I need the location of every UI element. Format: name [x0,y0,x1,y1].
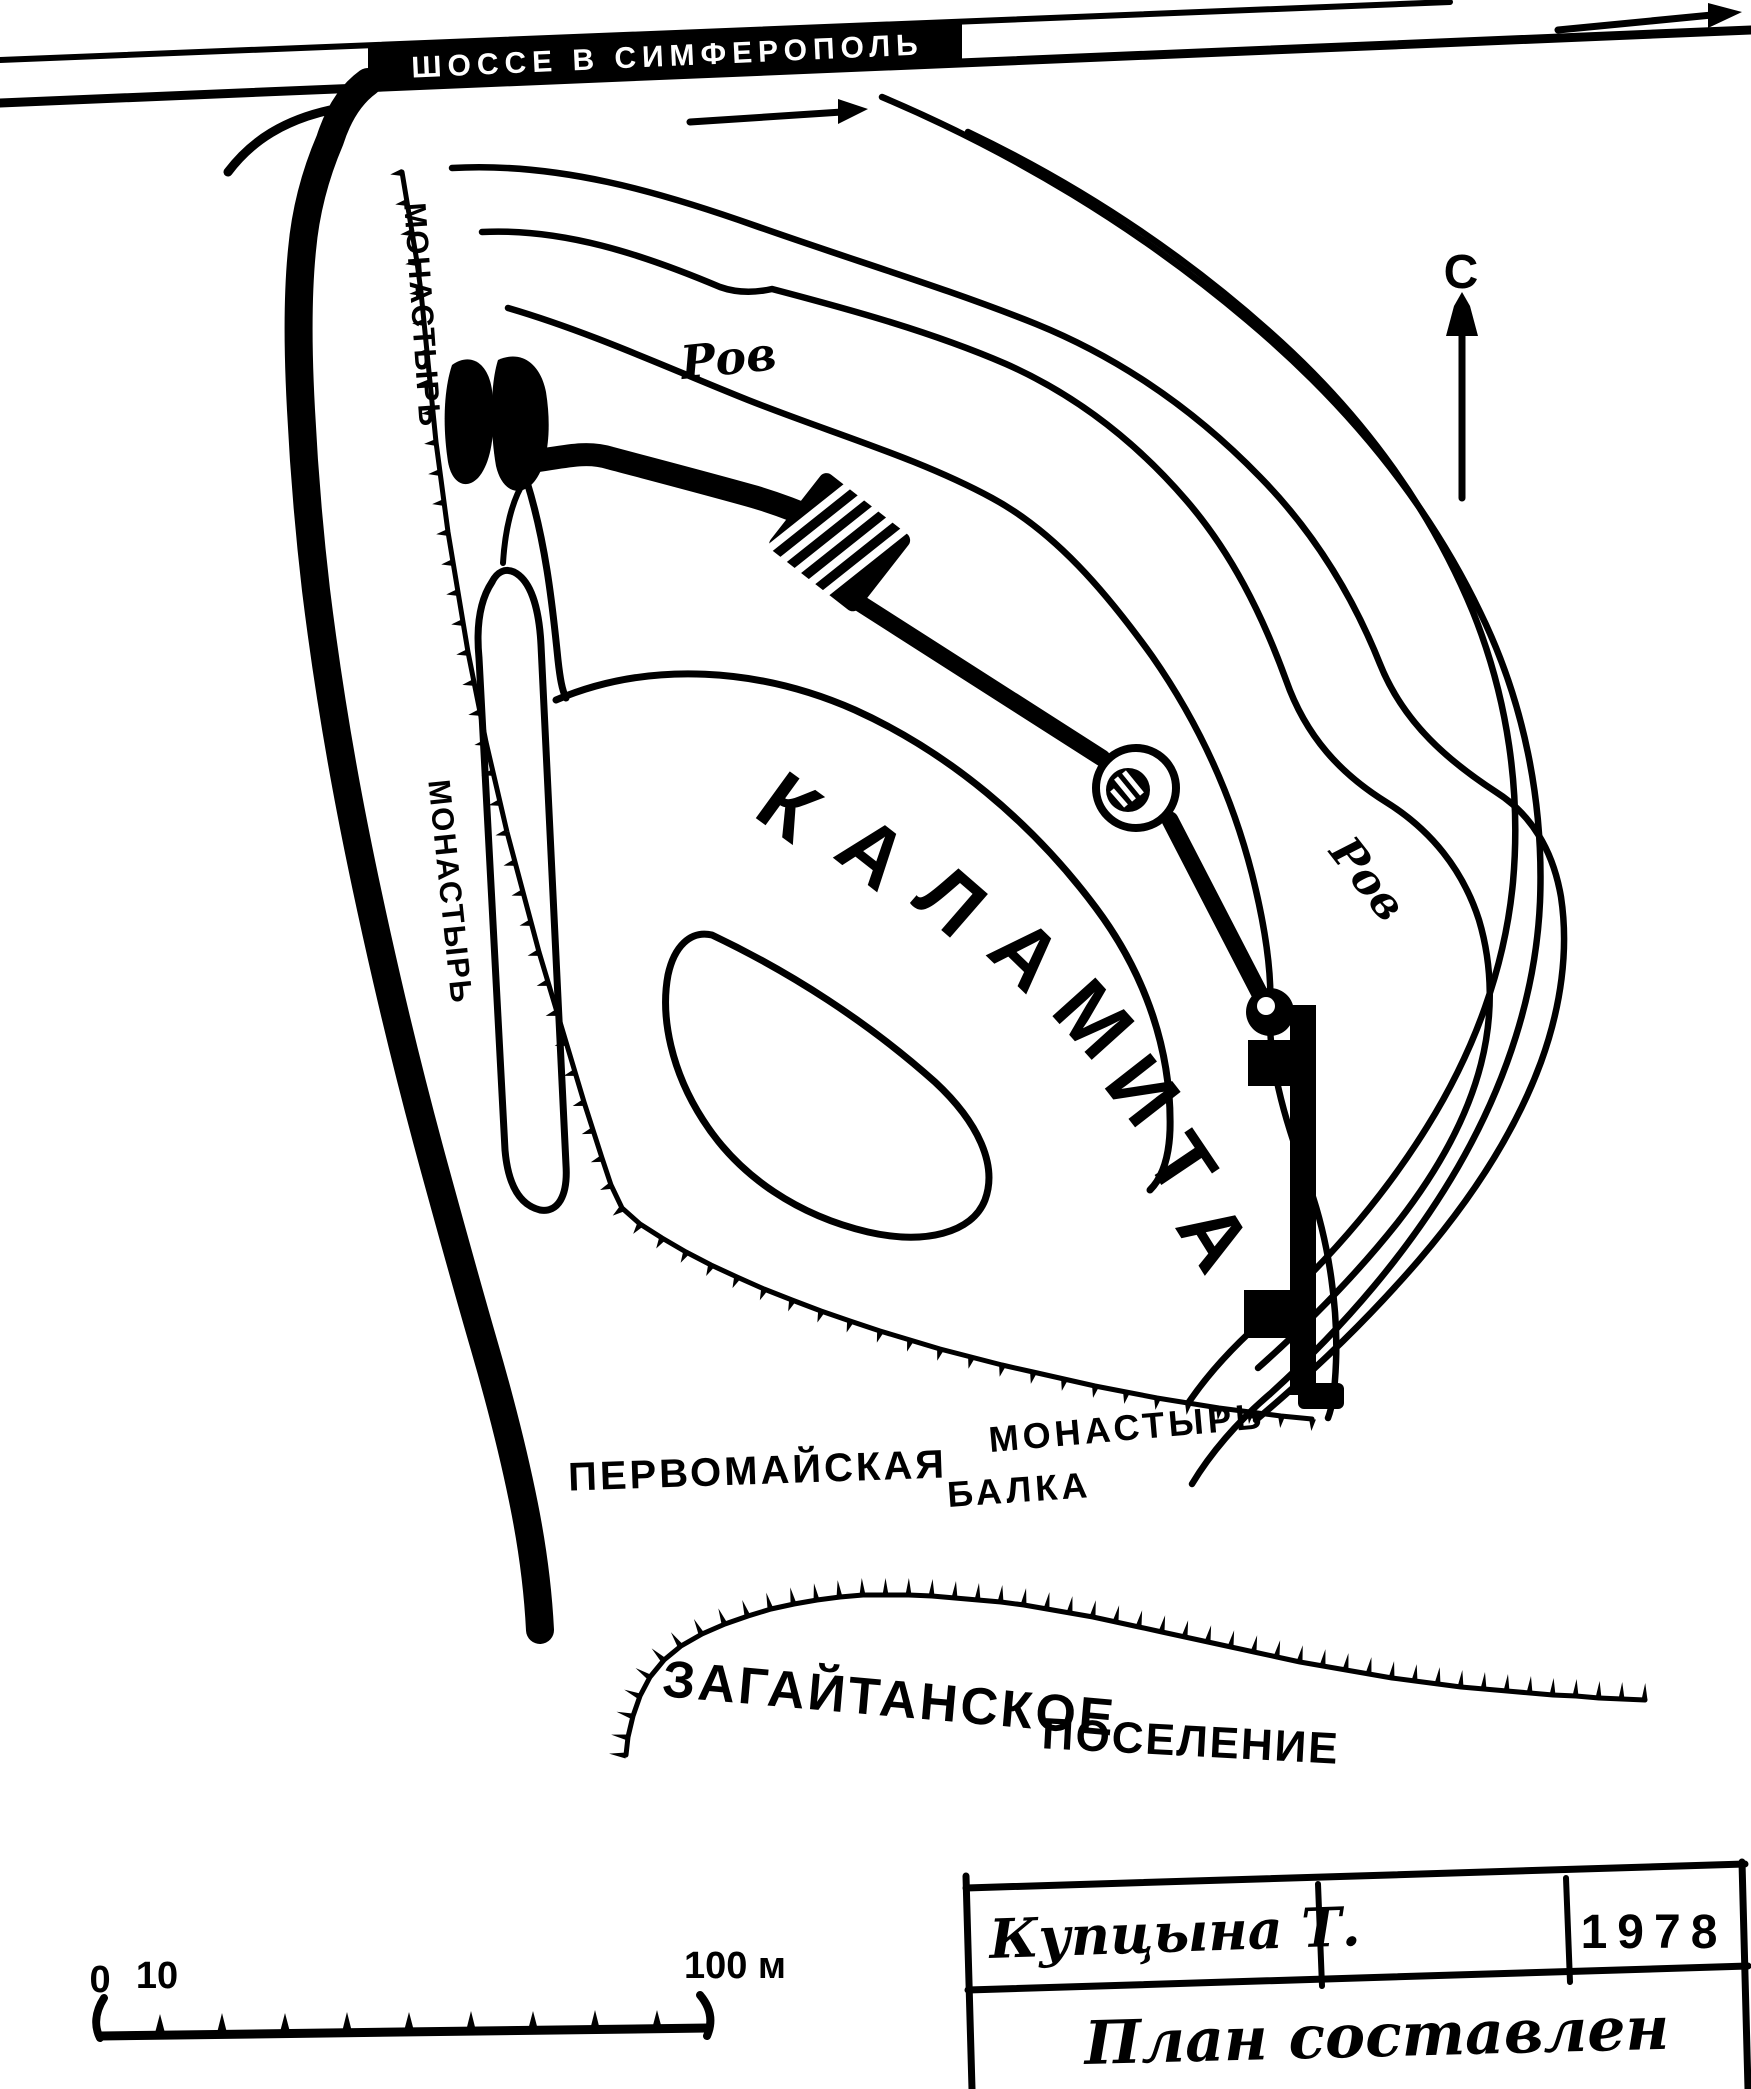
monastery-label-south: МОНАСТЫРЬ [987,1395,1267,1460]
strip-top-link [503,482,524,563]
title-block-right-border [1742,1862,1748,2089]
inner-depression [666,934,989,1237]
fortress-letter-0: К [741,753,838,860]
scale-line [100,2028,708,2036]
title-block-top-border [966,1864,1745,1888]
fortress-letter-2: Л [898,845,1004,955]
title-block-col-divider-2 [1566,1878,1570,1982]
fortress-letter-3: А [972,899,1081,1009]
moat-label-north: Ров [676,326,779,390]
moat-line-3 [452,167,1564,1420]
arrow-right-icon [690,99,868,124]
title-block: Купцына Т. 1978 План составлен [966,1862,1748,2089]
gate-tower-west [445,359,494,484]
north-indicator-label: С [1444,246,1479,299]
author-name: Купцына Т. [986,1894,1361,1971]
fortress-letter-7: А [1159,1186,1271,1287]
map-canvas: ШОССЕ В СИМФЕРОПОЛЬ С [0,0,1751,2089]
round-tower [1096,748,1176,828]
corner-tower [765,468,915,616]
fortress-name: К А Л А М И Т А [741,753,1271,1287]
access-road [228,82,540,1630]
title-block-row-divider [968,1966,1748,1990]
scale-zero-label: 0 [89,1959,110,2001]
interior-contours [478,482,1170,1237]
settlement-label-2: ПОСЕЛЕНИЕ [1041,1709,1341,1774]
moat-contours [452,97,1564,1484]
north-arrow: С [1444,246,1479,498]
moat-label-east: Ров [1318,826,1416,931]
highway: ШОССЕ В СИМФЕРОПОЛЬ [0,2,1751,103]
arrow-right-icon [1558,3,1742,30]
scale-hundred-label: 100 м [684,1945,786,1987]
scale-bar: 0 10 100 м [89,1945,786,2038]
ravine-label-2: БАЛКА [946,1464,1093,1515]
year-value: 1978 [1581,1906,1728,1959]
scale-ten-label: 10 [136,1955,178,1997]
ravine-label: ПЕРВОМАЙСКАЯ [567,1440,947,1499]
southeast-tower [1244,988,1344,1409]
fortress-letter-1: А [820,796,926,907]
caption-text: План составлен [1082,1994,1670,2079]
title-block-left-border [966,1876,972,2089]
monastery-label-top: МОНАСТЫРЬ [397,201,448,429]
monastery-label-mid: МОНАСТЫРЬ [421,778,479,1006]
